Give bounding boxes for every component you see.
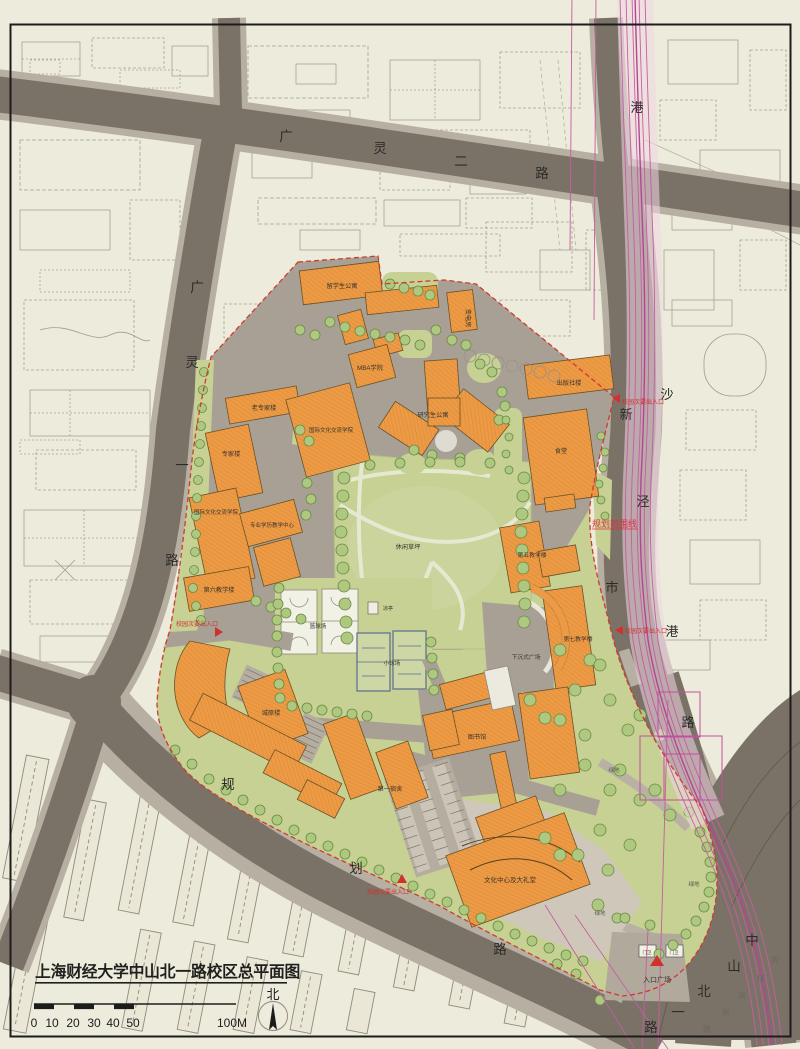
svg-text:绿地: 绿地 [688, 880, 700, 888]
svg-text:文化中心及大礼堂: 文化中心及大礼堂 [484, 875, 537, 884]
svg-text:校园次要出入口: 校园次要出入口 [622, 398, 664, 406]
svg-text:上海财经大学中山北一路校区总平面图: 上海财经大学中山北一路校区总平面图 [35, 962, 300, 981]
svg-text:划: 划 [349, 861, 363, 876]
svg-text:老专家楼: 老专家楼 [252, 404, 277, 412]
svg-text:20: 20 [66, 1016, 80, 1030]
svg-text:门卫: 门卫 [670, 949, 679, 956]
svg-text:研究生公寓: 研究生公寓 [418, 411, 449, 419]
svg-text:专家楼: 专家楼 [222, 450, 241, 458]
svg-text:凉亭: 凉亭 [383, 605, 393, 612]
svg-text:山: 山 [727, 959, 741, 974]
svg-text:第一宿舍: 第一宿舍 [378, 785, 403, 793]
svg-text:一: 一 [175, 458, 189, 473]
svg-text:路: 路 [644, 1020, 658, 1035]
svg-text:港: 港 [630, 100, 643, 115]
svg-text:环: 环 [757, 975, 765, 984]
svg-text:校园次要出入口: 校园次要出入口 [625, 627, 667, 635]
svg-text:规: 规 [221, 777, 235, 792]
svg-text:路: 路 [681, 715, 694, 730]
svg-text:广: 广 [190, 280, 204, 295]
svg-text:中: 中 [745, 933, 759, 948]
svg-text:留学生公寓: 留学生公寓 [327, 282, 358, 290]
svg-text:沙: 沙 [660, 387, 673, 402]
svg-text:内: 内 [771, 955, 779, 965]
svg-text:校园次要出入口: 校园次要出入口 [176, 620, 218, 628]
svg-text:路: 路 [165, 553, 179, 568]
svg-text:二: 二 [454, 154, 468, 169]
svg-text:食堂: 食堂 [555, 447, 567, 455]
svg-text:40: 40 [106, 1016, 120, 1030]
svg-text:30: 30 [87, 1016, 101, 1030]
svg-text:校园次要出入口: 校园次要出入口 [367, 888, 409, 896]
svg-text:绿地: 绿地 [608, 766, 620, 774]
svg-text:100M: 100M [217, 1016, 247, 1030]
svg-text:国际文化交流学院: 国际文化交流学院 [309, 426, 354, 434]
svg-text:北: 北 [266, 987, 279, 1002]
svg-text:新: 新 [619, 407, 632, 422]
svg-text:50: 50 [126, 1016, 140, 1030]
svg-text:北: 北 [697, 984, 711, 999]
svg-text:10: 10 [45, 1016, 59, 1030]
svg-text:规划范围线: 规划范围线 [592, 518, 637, 529]
svg-text:灵: 灵 [185, 355, 199, 370]
svg-text:第七教学楼: 第七教学楼 [564, 635, 593, 643]
svg-text:下沉式广场: 下沉式广场 [512, 653, 541, 661]
svg-text:泾: 泾 [636, 494, 649, 509]
svg-text:一: 一 [671, 1005, 685, 1020]
svg-text:架: 架 [722, 1008, 730, 1017]
svg-text:灵: 灵 [373, 141, 387, 156]
svg-text:路: 路 [703, 1024, 711, 1034]
svg-text:变电房: 变电房 [464, 309, 472, 328]
svg-text:休闲草坪: 休闲草坪 [396, 543, 421, 551]
svg-text:门卫: 门卫 [643, 949, 652, 956]
svg-text:广: 广 [279, 129, 293, 144]
svg-text:市: 市 [605, 580, 618, 595]
svg-text:入口广场: 入口广场 [643, 975, 671, 984]
svg-text:路: 路 [493, 942, 507, 957]
svg-text:路: 路 [535, 166, 549, 181]
svg-text:国际文化交流学院: 国际文化交流学院 [194, 508, 239, 516]
svg-text:高: 高 [738, 990, 746, 1000]
svg-text:城原楼: 城原楼 [262, 709, 281, 717]
svg-text:第六教学楼: 第六教学楼 [204, 586, 235, 594]
svg-text:图书馆: 图书馆 [468, 733, 487, 741]
svg-text:港: 港 [665, 624, 678, 639]
svg-text:MBA学院: MBA学院 [357, 364, 383, 372]
svg-text:出版社楼: 出版社楼 [557, 379, 582, 387]
svg-text:小球场: 小球场 [384, 659, 401, 667]
svg-text:0: 0 [31, 1016, 38, 1030]
svg-text:专业学历教学中心: 专业学历教学中心 [250, 521, 295, 529]
svg-text:第五教学楼: 第五教学楼 [518, 551, 547, 559]
svg-text:绿地: 绿地 [594, 909, 606, 917]
svg-text:篮球场: 篮球场 [310, 622, 327, 630]
